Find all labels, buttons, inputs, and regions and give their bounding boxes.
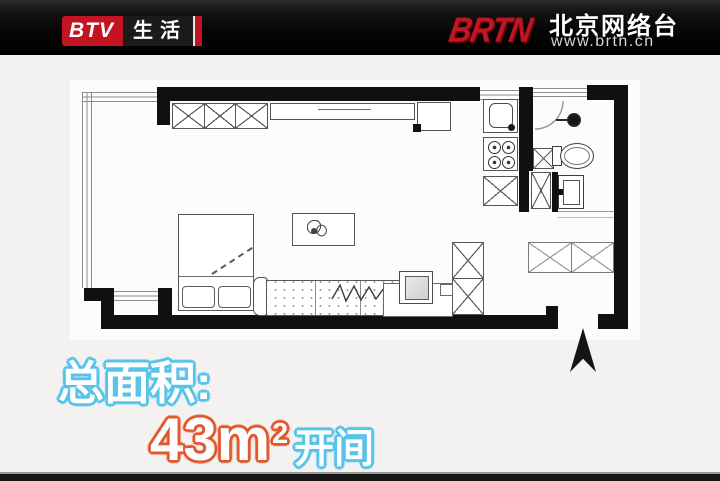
wardrobe-icon xyxy=(172,103,268,129)
bed-sheet-line xyxy=(179,276,253,277)
shower-head-icon xyxy=(567,113,581,127)
wall-right-foot xyxy=(598,314,628,329)
pillow xyxy=(218,286,251,308)
wall-right xyxy=(614,85,628,329)
tall-cabinet-icon xyxy=(452,242,484,315)
bath-counter-lines xyxy=(558,211,614,218)
wall-bath-divider xyxy=(519,87,533,171)
wardrobe-cell xyxy=(235,103,268,129)
side-box-icon xyxy=(440,284,453,296)
cabinet-cell xyxy=(452,242,484,279)
toilet-icon xyxy=(560,143,594,169)
wardrobe-cell xyxy=(204,103,237,129)
burner xyxy=(502,141,515,154)
wall-bottom-stub xyxy=(158,288,172,320)
coffee-table-icon xyxy=(292,213,355,246)
bathroom-door-arc xyxy=(534,100,564,130)
tv-icon xyxy=(399,271,433,304)
wall-bottom-cap xyxy=(546,306,558,329)
channel-name-label: 生活 xyxy=(123,16,193,46)
entry-cabinet-cell xyxy=(528,242,572,273)
burner xyxy=(502,156,515,169)
faucet-dot xyxy=(508,124,515,131)
area-number: 43m xyxy=(150,406,270,473)
fridge-icon xyxy=(417,102,451,131)
plant-center xyxy=(311,228,317,234)
window-bathroom xyxy=(533,88,587,97)
stove-icon xyxy=(483,137,518,171)
network-url-label: www.brtn.cn xyxy=(551,33,655,51)
tv-screen xyxy=(405,276,429,300)
wardrobe-cell xyxy=(172,103,205,129)
tv-screenshot: BTV 生活 BRTN 北京网络台 www.brtn.cn xyxy=(0,0,720,481)
sofa-blanket-scribble xyxy=(330,281,390,307)
shelf-detail-line xyxy=(318,109,371,110)
bath-cabinet-icon xyxy=(533,148,554,169)
wall-top xyxy=(157,87,480,101)
btv-channel-logo: BTV 生活 xyxy=(62,16,202,46)
bath-sink-icon xyxy=(558,175,584,209)
kitchen-sink-icon xyxy=(483,99,518,133)
caption-layout-type-label: 开间 xyxy=(294,429,374,469)
fridge-handle xyxy=(413,124,421,132)
bath-sink-basin xyxy=(563,180,580,205)
floor-plan-area: 总面积: 43m2 开间 xyxy=(0,55,720,472)
entry-cabinet-cell xyxy=(571,242,615,273)
pillow xyxy=(182,286,215,308)
shelf-icon xyxy=(270,103,415,120)
cabinet-cell xyxy=(452,278,484,315)
window-left xyxy=(82,92,92,288)
bed-icon xyxy=(178,214,254,311)
toilet-bowl-inner xyxy=(564,147,590,165)
area-exponent: 2 xyxy=(272,418,288,450)
caption-total-area-label: 总面积: xyxy=(58,360,211,406)
burner xyxy=(488,156,501,169)
window-top-left xyxy=(82,92,157,102)
btv-logo-text: BTV xyxy=(62,16,123,46)
sofa-seat-divider xyxy=(315,281,316,315)
kitchen-cabinet-icon xyxy=(483,176,518,206)
bottom-letterbox-bar xyxy=(0,472,720,481)
wall-bath-divider-lower xyxy=(519,168,529,212)
burner xyxy=(488,141,501,154)
caption-area-value: 43m2 xyxy=(150,410,288,470)
logo-red-tab xyxy=(193,16,202,46)
wall-top-left-stub xyxy=(157,87,170,125)
entry-cabinet-icon xyxy=(528,242,614,273)
broadcast-top-bar: BTV 生活 BRTN 北京网络台 www.brtn.cn xyxy=(0,0,720,55)
wall-bottom-left-v xyxy=(101,288,114,320)
washing-machine-icon xyxy=(531,172,551,209)
bath-faucet-dot xyxy=(557,189,563,195)
window-bottom-left xyxy=(114,291,158,301)
brtn-logo: BRTN xyxy=(446,10,535,50)
bed-throw-line xyxy=(211,247,252,275)
